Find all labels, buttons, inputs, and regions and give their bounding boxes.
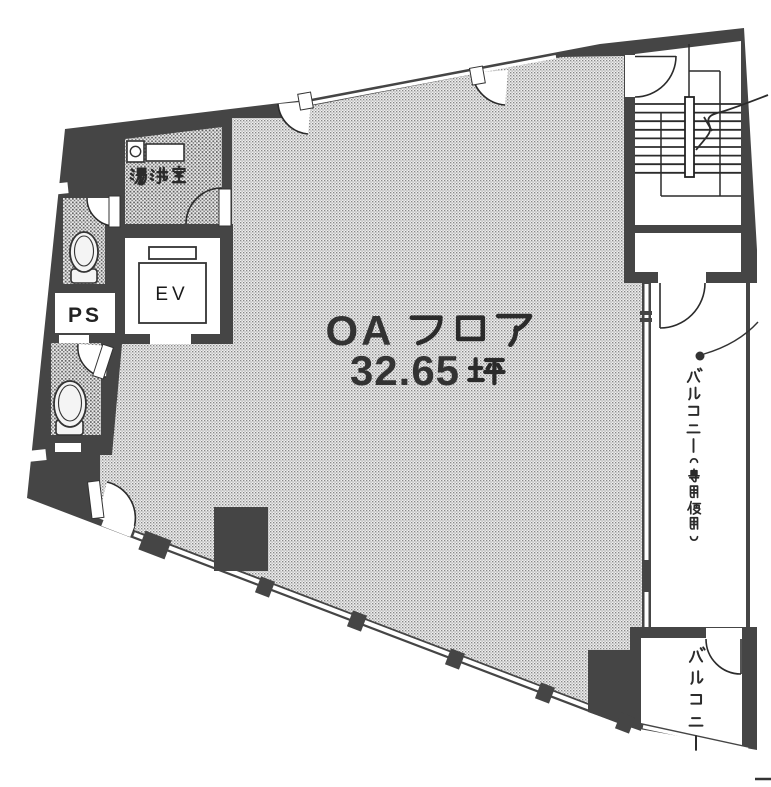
svg-text:PS: PS bbox=[68, 304, 102, 327]
svg-text:32.65: 32.65 bbox=[350, 347, 460, 394]
svg-text:EV: EV bbox=[155, 284, 188, 305]
